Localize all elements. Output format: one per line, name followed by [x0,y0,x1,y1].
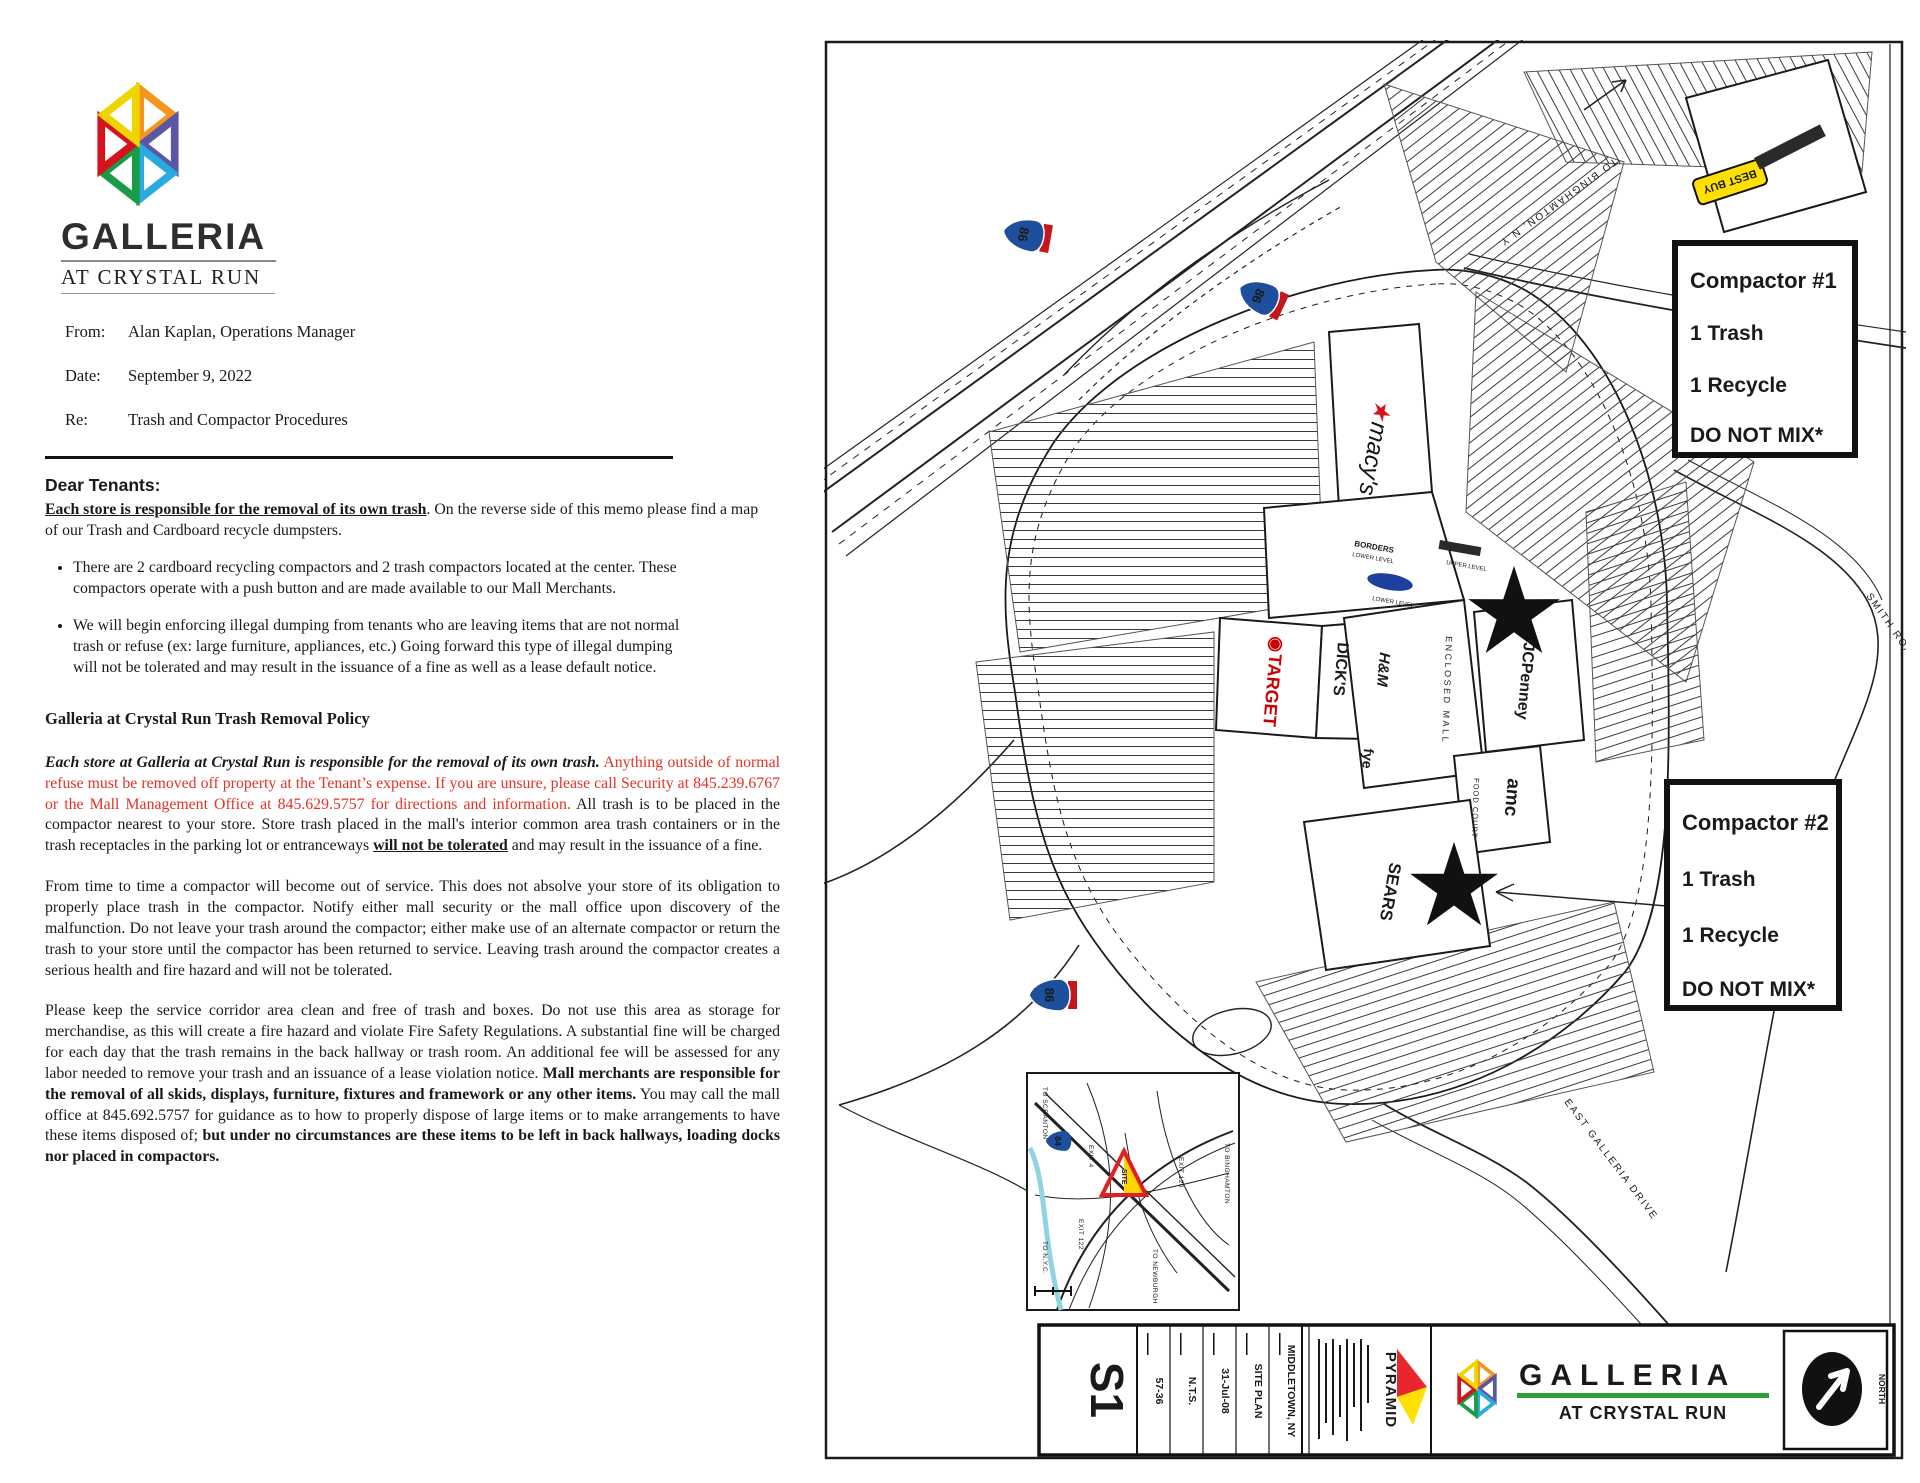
compactor1-warning: DO NOT MIX* [1690,424,1824,447]
compactor2-trash: 1 Trash [1682,868,1756,891]
header-rule [45,456,673,459]
location-inset-map: 84 SITE TO SCRANTON TO N.Y.C. TO BINGHAM… [1027,1073,1239,1310]
title-block: S1 57-36 N.T.S. 31-Jul-08 SITE PLAN MIDD… [1039,1325,1894,1455]
intro-bold-underline: Each store is responsible for the remova… [45,501,426,518]
corridor-paragraph: Please keep the service corridor area cl… [45,1001,780,1168]
service-paragraph: From time to time a compactor will becom… [45,877,780,981]
brand-name: GALLERIA [61,214,276,262]
exit4-label: EXIT 4 [1087,1145,1094,1168]
site-label: SITE [1120,1169,1127,1185]
policy-heading: Galleria at Crystal Run Trash Removal Po… [45,709,790,729]
hm-label: H&M [1373,652,1393,688]
target-bullseye-icon: ◉ [1266,636,1287,654]
compactor1-title: Compactor #1 [1690,268,1837,293]
re-label: Re: [65,410,128,454]
from-value: Alan Kaplan, Operations Manager [128,322,355,366]
compactor1-recycle: 1 Recycle [1690,374,1787,397]
green-underline [1517,1393,1769,1398]
policy-bold-italic: Each store at Galleria at Crystal Run is… [45,754,600,771]
north-label: NORTH [1877,1374,1887,1404]
salutation: Dear Tenants: [45,475,790,496]
galleria-logo: GALLERIA AT CRYSTAL RUN [61,78,790,294]
sheet-number: S1 [1081,1362,1133,1418]
svg-text:86: 86 [1042,988,1057,1002]
intro-paragraph: Each store is responsible for the remova… [45,500,761,542]
from-label: From: [65,322,128,366]
policy-paragraph: Each store at Galleria at Crystal Run is… [45,753,780,857]
bullet-list: There are 2 cardboard recycling compacto… [73,558,790,679]
bullet-item: There are 2 cardboard recycling compacto… [73,558,698,600]
compactor2-recycle: 1 Recycle [1682,924,1779,947]
fye-label: fye [1359,748,1377,770]
titleblock-tagline: AT CRYSTAL RUN [1559,1403,1727,1423]
memo-document: GALLERIA AT CRYSTAL RUN From: Alan Kapla… [45,78,790,1168]
svg-text:86: 86 [1015,226,1032,243]
exit120-label: EXIT 120 [1177,1157,1184,1188]
date-label: Date: [65,366,128,410]
field-project-number: 57-36 [1153,1378,1165,1405]
to-binghamton-label: TO BINGHAMTON [1223,1143,1230,1204]
compactor1-callout: Compactor #1 1 Trash 1 Recycle DO NOT MI… [1675,243,1855,455]
galleria-gem-icon [79,78,197,210]
field-sheet-title: SITE PLAN [1252,1364,1264,1419]
policy-black-2: and may result in the issuance of a fine… [508,837,762,854]
compactor2-warning: DO NOT MIX* [1682,978,1816,1001]
field-date: 31-Jul-08 [1219,1368,1231,1414]
pyramid-label: PYRAMID [1382,1352,1399,1428]
field-location: MIDDLETOWN, NY [1285,1345,1297,1438]
policy-bold-underline: will not be tolerated [373,837,508,854]
to-newburgh-label: TO NEWBURGH [1151,1249,1158,1304]
svg-text:84: 84 [1053,1136,1063,1146]
memo-header-fields: From: Alan Kaplan, Operations Manager Da… [65,322,355,454]
exit122-label: EXIT 122 [1077,1219,1084,1250]
memo-from-row: From: Alan Kaplan, Operations Manager [65,322,355,366]
field-scale: N.T.S. [1186,1377,1198,1406]
date-value: September 9, 2022 [128,366,355,410]
titleblock-galleria: GALLERIA [1519,1359,1736,1392]
to-nyc-label: TO N.Y.C. [1041,1241,1048,1275]
site-plan-map: ★macy's ◉TARGET DICK'S H&M JCPenney amc … [824,40,1906,1462]
to-scranton-label: TO SCRANTON [1041,1087,1048,1140]
amc-label: amc [1500,778,1524,818]
compactor2-title: Compactor #2 [1682,810,1829,835]
memo-date-row: Date: September 9, 2022 [65,366,355,410]
north-arrow: NORTH [1784,1331,1887,1449]
brand-subtitle: AT CRYSTAL RUN [61,264,275,294]
compactor1-trash: 1 Trash [1690,322,1764,345]
memo-re-row: Re: Trash and Compactor Procedures [65,410,355,454]
re-value: Trash and Compactor Procedures [128,410,355,454]
compactor2-callout: Compactor #2 1 Trash 1 Recycle DO NOT MI… [1667,782,1839,1008]
bullet-item: We will begin enforcing illegal dumping … [73,616,698,679]
